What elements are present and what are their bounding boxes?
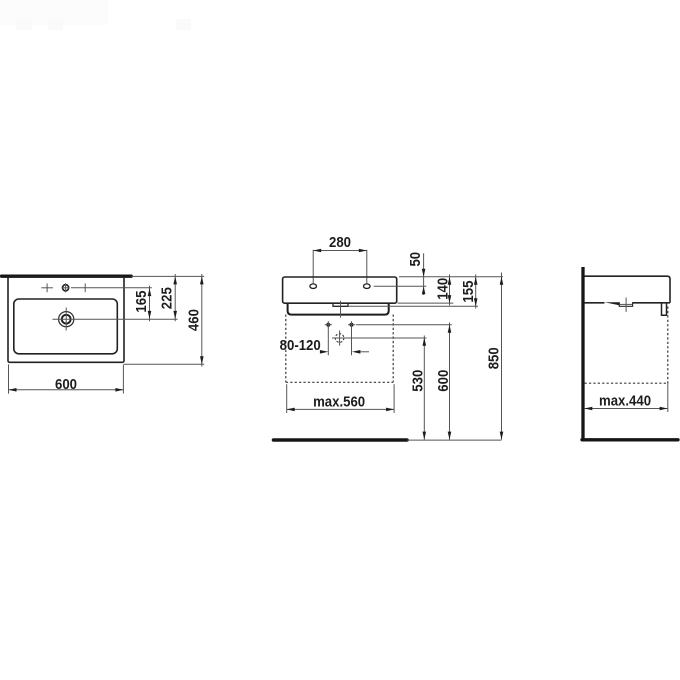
svg-text:max.440: max.440	[599, 392, 651, 409]
svg-text:50: 50	[406, 252, 423, 267]
svg-text:280: 280	[329, 233, 351, 250]
svg-text:600: 600	[55, 375, 77, 392]
svg-text:165: 165	[132, 290, 149, 312]
svg-text:80-120: 80-120	[280, 336, 321, 353]
svg-text:225: 225	[158, 287, 175, 309]
svg-text:460: 460	[185, 309, 202, 331]
svg-text:140: 140	[434, 278, 451, 300]
svg-text:155: 155	[459, 280, 476, 302]
svg-text:850: 850	[485, 347, 502, 369]
svg-text:600: 600	[434, 370, 451, 392]
svg-text:max.560: max.560	[313, 392, 365, 409]
svg-text:530: 530	[409, 370, 426, 392]
